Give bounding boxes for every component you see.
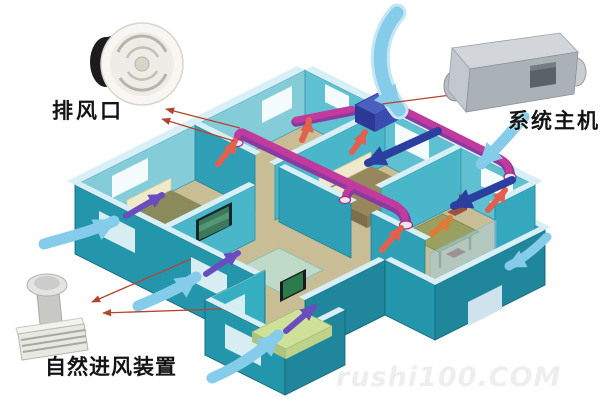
duct-outlet-flare <box>340 197 351 204</box>
ventilation-diagram: rushi100.COM <box>0 0 600 401</box>
intake-device-photo <box>16 274 88 360</box>
exhaust-vent-photo <box>90 23 183 105</box>
label-exhaust-vent: 排风口 <box>52 100 124 123</box>
house-illustration <box>0 0 600 401</box>
label-system-unit: 系统主机 <box>508 110 600 133</box>
system-unit-photo <box>444 33 586 112</box>
label-intake-device: 自然进风装置 <box>45 356 177 379</box>
